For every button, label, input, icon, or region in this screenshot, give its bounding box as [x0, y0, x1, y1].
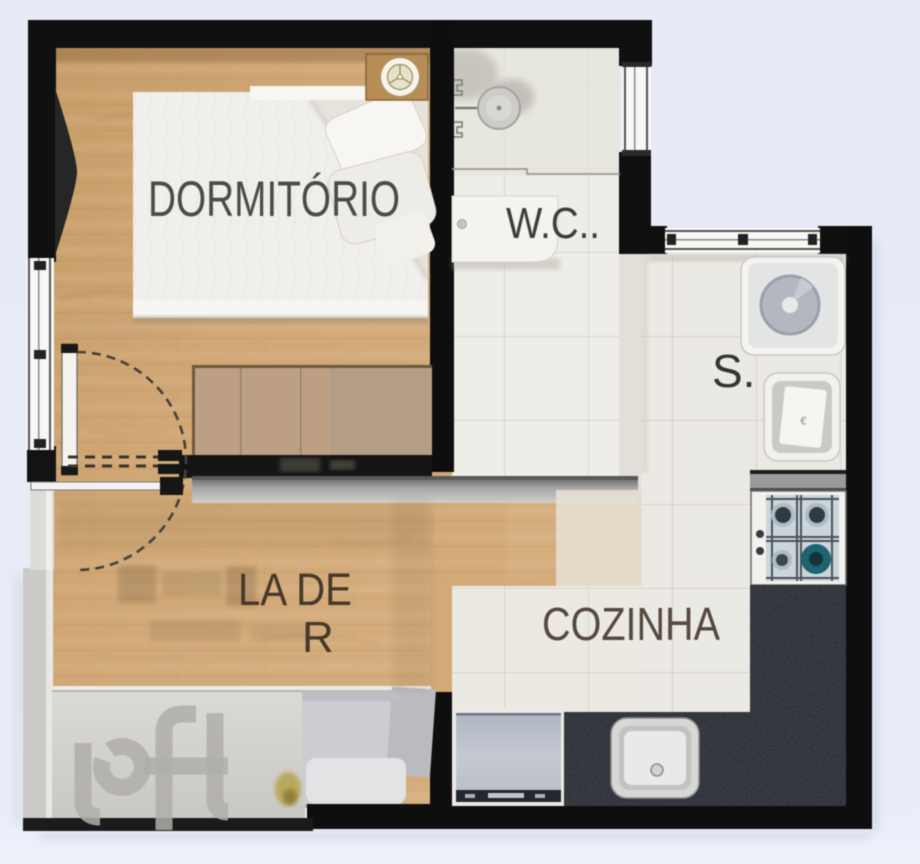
svg-text:DORMITÓRIO: DORMITÓRIO: [148, 171, 400, 227]
svg-text:LA DE: LA DE: [238, 564, 352, 615]
svg-text:COZINHA: COZINHA: [542, 598, 720, 650]
svg-text:R: R: [302, 613, 334, 662]
svg-text:S.: S.: [712, 345, 755, 397]
svg-text:€: €: [800, 415, 807, 428]
svg-text:W.C..: W.C..: [506, 199, 600, 248]
